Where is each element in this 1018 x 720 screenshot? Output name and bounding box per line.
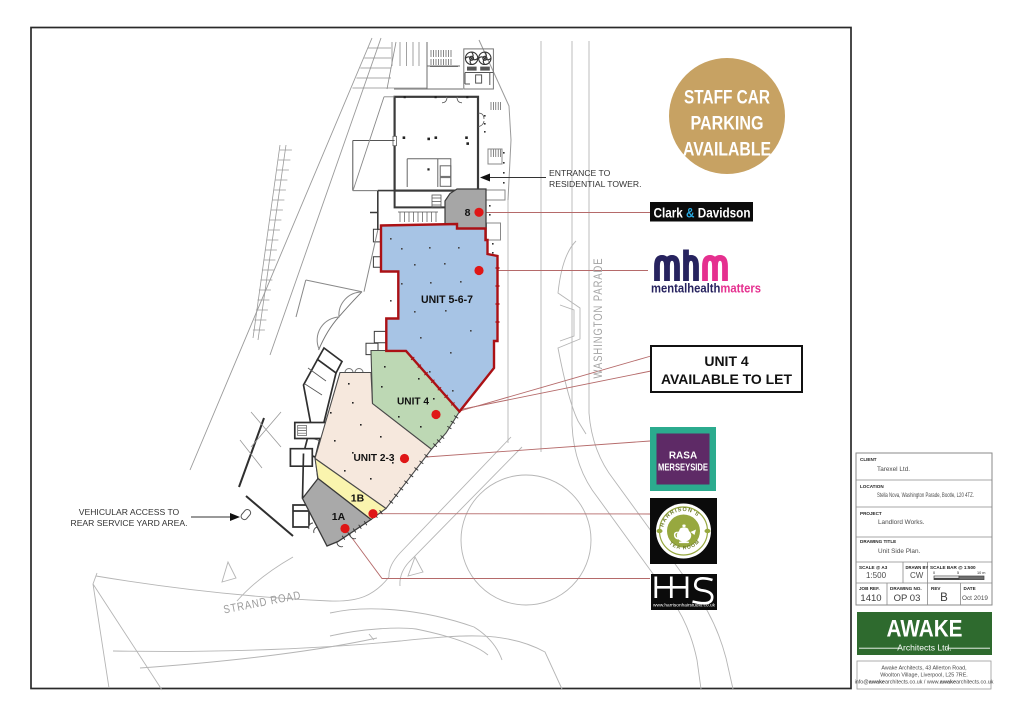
svg-text:MERSEYSIDE: MERSEYSIDE: [658, 463, 708, 474]
svg-text:UNIT 2-3: UNIT 2-3: [354, 452, 395, 464]
svg-text:RASA: RASA: [669, 451, 697, 462]
svg-text:AWAKE: AWAKE: [887, 616, 963, 643]
svg-text:Tarexel Ltd.: Tarexel Ltd.: [877, 466, 910, 473]
svg-text:DATE: DATE: [964, 586, 976, 591]
svg-text:DRAWING TITLE: DRAWING TITLE: [860, 539, 896, 544]
svg-text:VEHICULAR ACCESS TO: VEHICULAR ACCESS TO: [79, 507, 180, 517]
svg-text:ENTRANCE TO: ENTRANCE TO: [549, 168, 611, 178]
svg-text:1B: 1B: [351, 493, 365, 505]
svg-text:REV: REV: [931, 586, 941, 591]
svg-text:Woolton Village, Liverpool, L2: Woolton Village, Liverpool, L25 7RE.: [880, 673, 968, 679]
svg-text:CW: CW: [910, 571, 924, 580]
svg-text:Landlord Works.: Landlord Works.: [878, 519, 925, 526]
svg-text:SCALE @ A3: SCALE @ A3: [859, 565, 888, 570]
svg-text:DRAWN BY: DRAWN BY: [906, 565, 929, 570]
svg-text:Stella Nova, Washington Parade: Stella Nova, Washington Parade, Bootle, …: [877, 492, 974, 499]
svg-text:www.harrisonhairstudio.co.uk: www.harrisonhairstudio.co.uk: [653, 603, 716, 608]
svg-text:1410: 1410: [860, 593, 881, 604]
svg-text:CLIENT: CLIENT: [860, 457, 877, 462]
svg-text:RESIDENTIAL TOWER.: RESIDENTIAL TOWER.: [549, 179, 641, 189]
svg-text:Awake Architects, 43 Allerton: Awake Architects, 43 Allerton Road,: [881, 666, 967, 672]
svg-text:Clark & Davidson: Clark & Davidson: [654, 205, 751, 221]
svg-text:Architects Ltd.: Architects Ltd.: [897, 643, 951, 653]
svg-text:OP 03: OP 03: [894, 593, 921, 604]
svg-text:5: 5: [957, 571, 959, 575]
svg-text:1A: 1A: [332, 511, 346, 523]
svg-text:AVAILABLE TO LET: AVAILABLE TO LET: [661, 371, 792, 387]
svg-text:0: 0: [933, 571, 935, 575]
svg-text:1:500: 1:500: [866, 571, 887, 580]
svg-text:info@awakearchitects.co.uk /: info@awakearchitects.co.uk / www.awakear…: [855, 680, 994, 686]
svg-text:PROJECT: PROJECT: [860, 511, 882, 516]
svg-text:PARKING: PARKING: [691, 114, 764, 135]
svg-text:Unit Side Plan.: Unit Side Plan.: [878, 548, 920, 555]
svg-text:10 m: 10 m: [977, 571, 985, 575]
svg-text:JOB REF.: JOB REF.: [859, 586, 880, 591]
svg-text:LOCATION: LOCATION: [860, 484, 884, 489]
svg-text:UNIT 5-6-7: UNIT 5-6-7: [421, 294, 473, 306]
svg-text:AVAILABLE: AVAILABLE: [683, 140, 771, 161]
svg-text:WASHINGTON PARADE: WASHINGTON PARADE: [593, 258, 605, 379]
svg-text:STAFF CAR: STAFF CAR: [684, 88, 770, 109]
svg-text:mentalhealthmatters: mentalhealthmatters: [651, 281, 761, 296]
svg-text:REAR SERVICE YARD AREA.: REAR SERVICE YARD AREA.: [70, 518, 187, 528]
svg-text:UNIT 4: UNIT 4: [397, 396, 429, 408]
svg-text:B: B: [940, 592, 948, 604]
svg-text:SCALE BAR @ 1:500: SCALE BAR @ 1:500: [930, 565, 976, 570]
svg-text:Oct 2019: Oct 2019: [962, 595, 988, 602]
svg-text:UNIT 4: UNIT 4: [704, 353, 749, 369]
svg-text:DRAWING NO.: DRAWING NO.: [890, 586, 922, 591]
svg-text:8: 8: [465, 207, 471, 219]
